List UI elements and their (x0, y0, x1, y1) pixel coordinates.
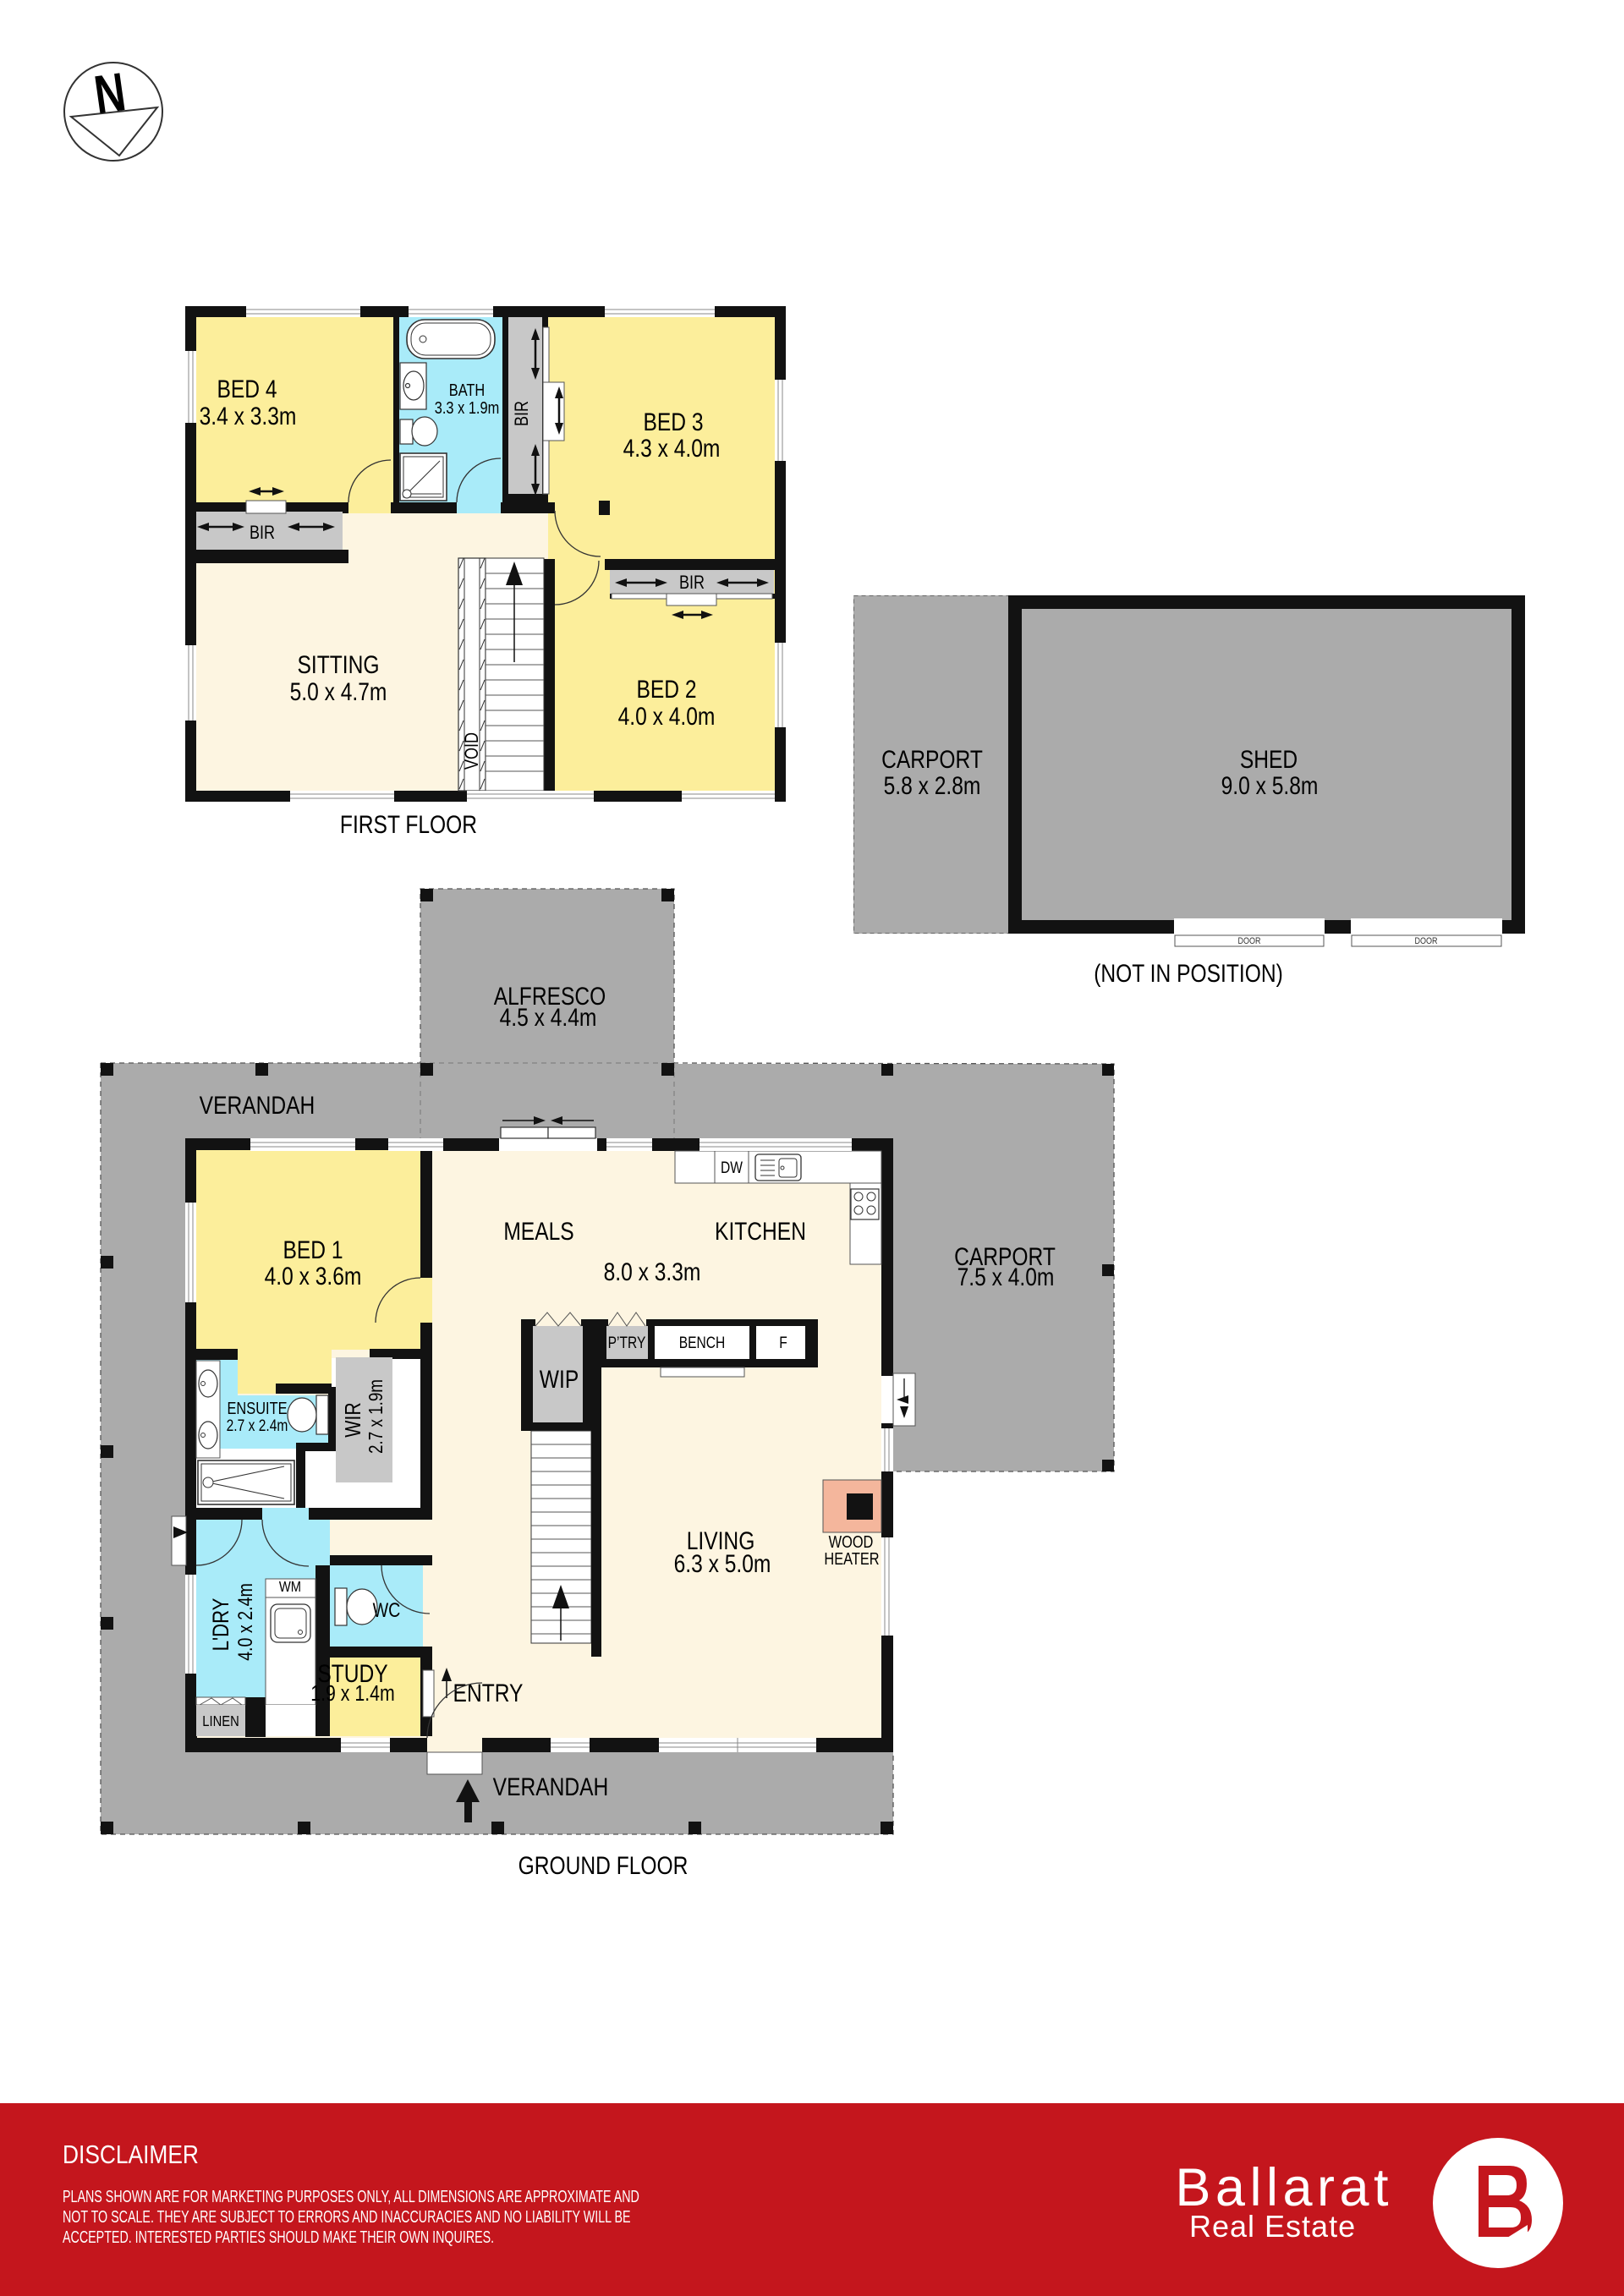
svg-text:5.0 x 4.7m: 5.0 x 4.7m (290, 677, 387, 706)
svg-text:BENCH: BENCH (679, 1334, 726, 1352)
svg-text:6.3 x 5.0m: 6.3 x 5.0m (674, 1549, 771, 1578)
svg-text:3.3 x 1.9m: 3.3 x 1.9m (435, 397, 499, 417)
svg-text:NOT TO SCALE. THEY ARE SUBJECT: NOT TO SCALE. THEY ARE SUBJECT TO ERRORS… (63, 2207, 631, 2227)
svg-text:WM: WM (279, 1579, 301, 1596)
svg-text:LINEN: LINEN (202, 1713, 239, 1730)
svg-text:VOID: VOID (462, 732, 482, 770)
svg-text:F: F (779, 1334, 787, 1352)
svg-text:FIRST FLOOR: FIRST FLOOR (340, 810, 477, 839)
svg-text:BED 2: BED 2 (636, 675, 696, 704)
svg-text:BED 1: BED 1 (283, 1236, 343, 1264)
svg-text:3.4 x 3.3m: 3.4 x 3.3m (200, 402, 297, 430)
svg-text:2.7 x 2.4m: 2.7 x 2.4m (227, 1417, 288, 1435)
svg-text:(NOT IN POSITION): (NOT IN POSITION) (1094, 959, 1283, 988)
svg-text:2.7 x 1.9m: 2.7 x 1.9m (365, 1379, 387, 1454)
svg-text:KITCHEN: KITCHEN (715, 1217, 806, 1246)
svg-text:DISCLAIMER: DISCLAIMER (63, 2140, 199, 2169)
svg-text:8.0 x 3.3m: 8.0 x 3.3m (604, 1258, 701, 1286)
svg-text:DOOR: DOOR (1237, 936, 1260, 946)
svg-text:BIR: BIR (679, 573, 705, 593)
svg-text:BIR: BIR (512, 401, 532, 426)
svg-text:BATH: BATH (449, 380, 485, 399)
svg-text:MEALS: MEALS (503, 1217, 573, 1246)
svg-text:DW: DW (721, 1159, 743, 1177)
svg-text:4.0 x 3.6m: 4.0 x 3.6m (265, 1262, 362, 1290)
svg-text:CARPORT: CARPORT (881, 745, 983, 774)
svg-text:WIR: WIR (341, 1402, 366, 1437)
svg-text:VERANDAH: VERANDAH (200, 1091, 315, 1120)
svg-text:P’TRY: P’TRY (608, 1334, 646, 1352)
svg-text:ENTRY: ENTRY (453, 1679, 524, 1707)
svg-text:HEATER: HEATER (824, 1548, 879, 1568)
svg-text:4.0 x 4.0m: 4.0 x 4.0m (618, 702, 716, 731)
svg-text:WIP: WIP (540, 1365, 579, 1394)
svg-text:ACCEPTED. INTERESTED PARTIES S: ACCEPTED. INTERESTED PARTIES SHOULD MAKE… (63, 2228, 494, 2247)
svg-text:7.5 x 4.0m: 7.5 x 4.0m (957, 1263, 1055, 1291)
svg-text:PLANS SHOWN ARE FOR MARKETING: PLANS SHOWN ARE FOR MARKETING PURPOSES O… (63, 2187, 639, 2206)
svg-text:BIR: BIR (250, 523, 275, 543)
svg-text:4.5 x 4.4m: 4.5 x 4.4m (500, 1003, 597, 1032)
svg-text:WC: WC (373, 1598, 401, 1621)
svg-text:Real Estate: Real Estate (1189, 2209, 1356, 2244)
svg-text:4.0 x 2.4m: 4.0 x 2.4m (233, 1583, 256, 1661)
svg-text:5.8 x 2.8m: 5.8 x 2.8m (884, 771, 981, 800)
svg-text:9.0 x 5.8m: 9.0 x 5.8m (1221, 771, 1319, 800)
svg-text:BED 4: BED 4 (217, 375, 277, 403)
svg-text:SHED: SHED (1240, 745, 1298, 774)
svg-text:ENSUITE: ENSUITE (228, 1398, 288, 1417)
svg-text:DOOR: DOOR (1414, 936, 1437, 946)
svg-text:1.9 x 1.4m: 1.9 x 1.4m (310, 1681, 395, 1707)
svg-text:L'DRY: L'DRY (209, 1598, 234, 1652)
svg-text:4.3 x 4.0m: 4.3 x 4.0m (623, 434, 721, 463)
svg-text:SITTING: SITTING (297, 650, 379, 679)
svg-text:BED 3: BED 3 (643, 408, 703, 436)
svg-text:VERANDAH: VERANDAH (493, 1773, 609, 1801)
svg-text:GROUND FLOOR: GROUND FLOOR (518, 1851, 689, 1880)
